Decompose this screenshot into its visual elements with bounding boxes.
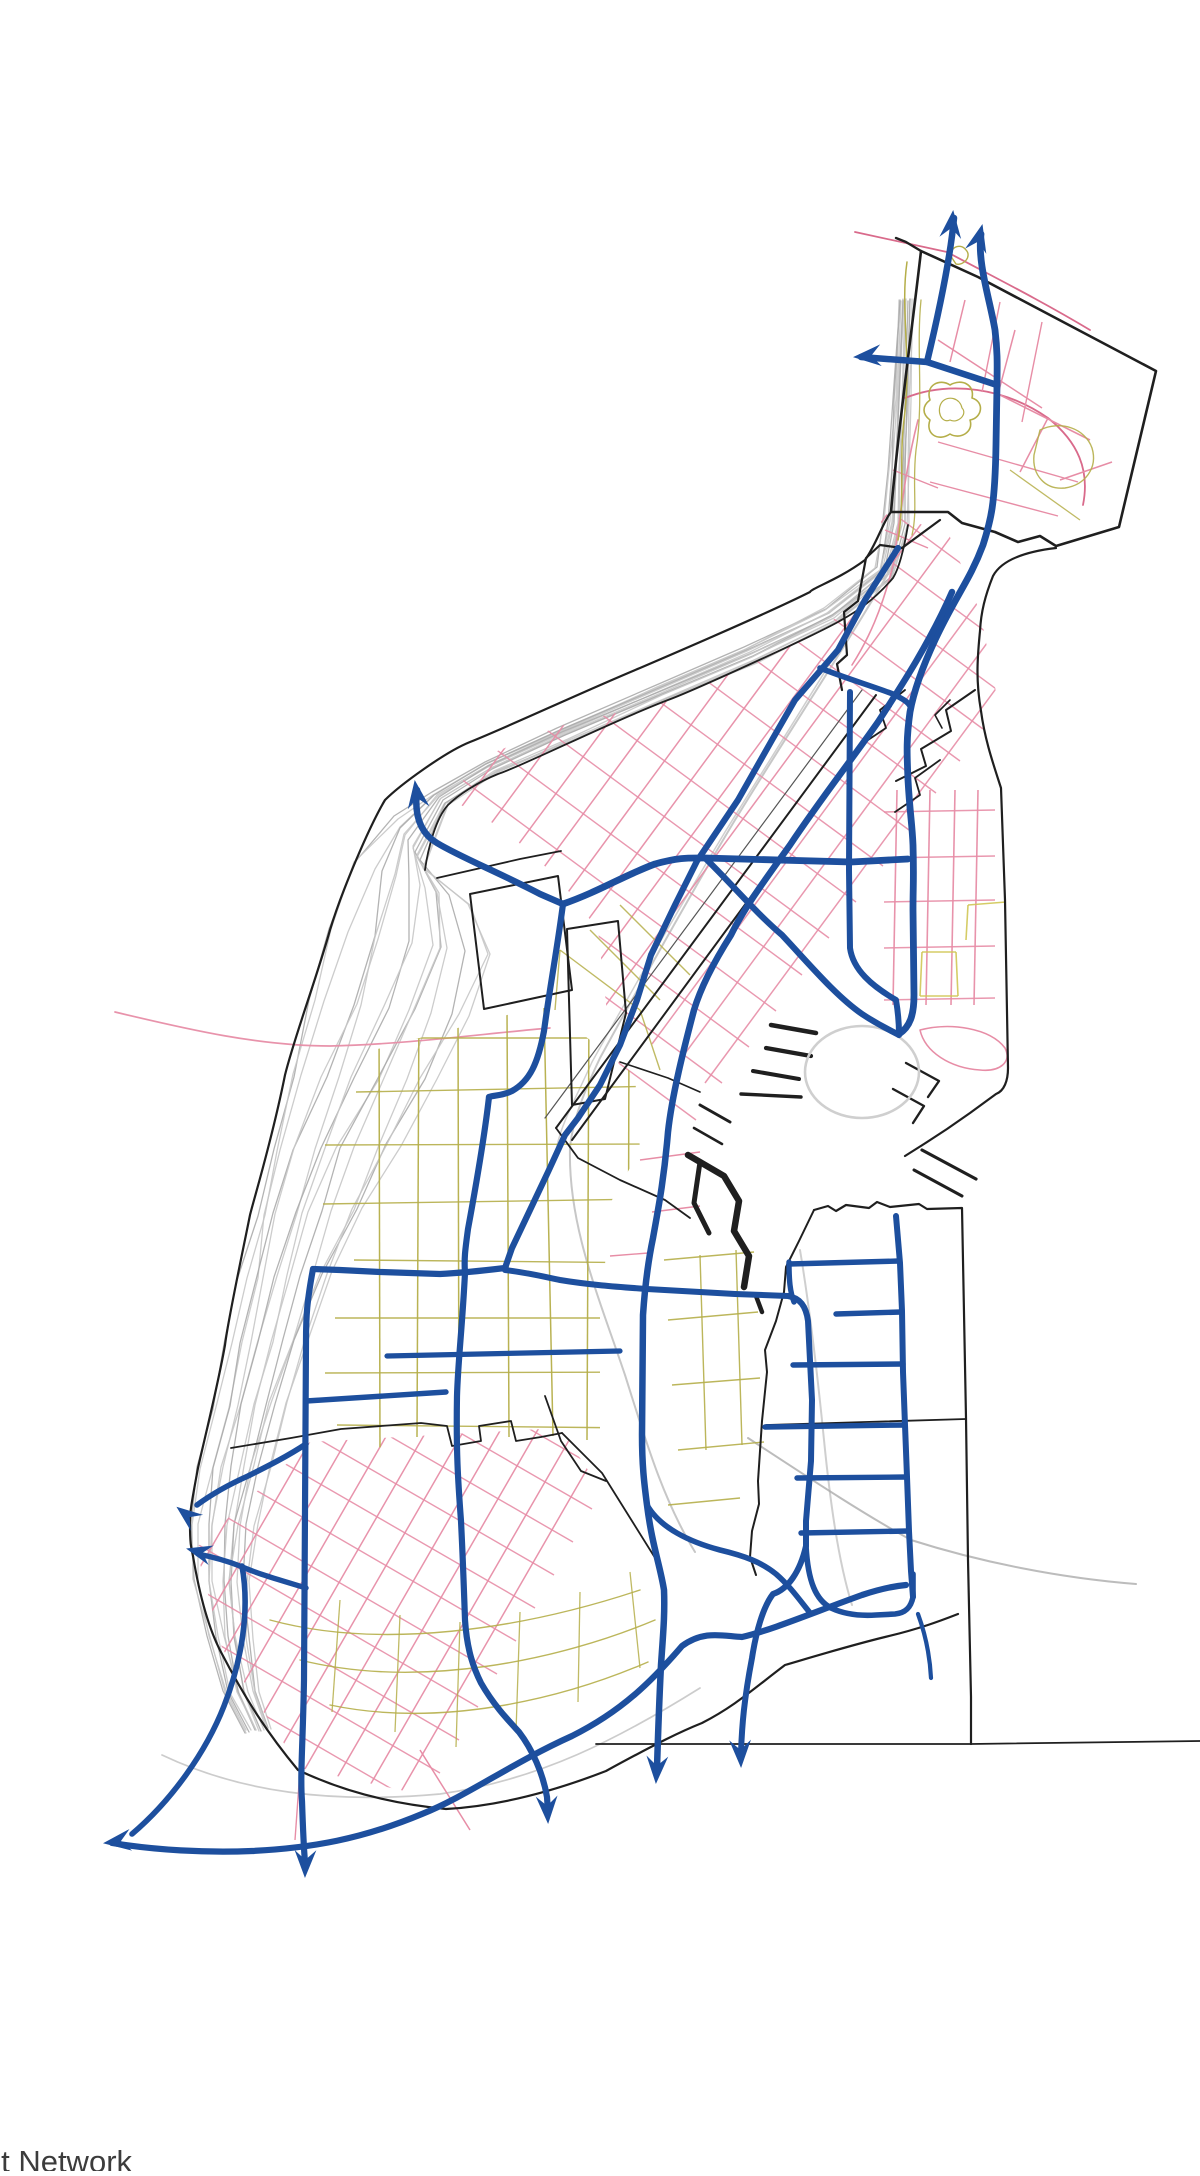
svg-text:Street Network: Street Network [0, 2144, 133, 2171]
